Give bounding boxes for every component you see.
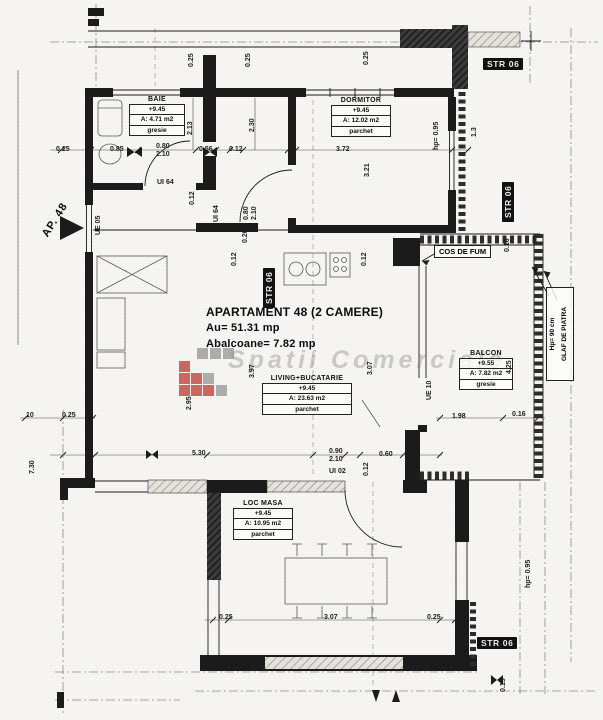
dimension-label: 3.97	[249, 364, 257, 378]
dimension-label: 0.20	[242, 229, 250, 243]
dimension-label: 1.3	[471, 127, 479, 137]
dimension-label: 0.12	[189, 191, 197, 205]
dimension-label: 0.12	[361, 252, 369, 266]
room-label-living: LIVING+BUCATARIE +9.45 A: 23.63 m2 parch…	[262, 375, 352, 415]
dimension-label: 0.25	[62, 412, 76, 420]
annotation-layer: APARTAMENT 48 (2 CAMERE) Au= 51.31 mp Ab…	[0, 0, 603, 720]
dimension-label: 0.15	[500, 678, 508, 692]
door-code-label: UE 10	[426, 381, 434, 400]
dimension-label: 3.21	[364, 163, 372, 177]
street-label: STR 06	[483, 58, 523, 70]
dimension-label: 0.25	[188, 53, 196, 67]
room-label-balcon: BALCON +9.55 A: 7.82 m2 gresie	[459, 350, 513, 390]
door-code-label: UI 64	[213, 205, 221, 222]
dimension-label: 0.25	[427, 614, 441, 622]
door-code-label: UE 05	[95, 216, 103, 235]
dimension-label: 1.98	[452, 413, 466, 421]
dimension-label: 0.80 2.10	[156, 143, 170, 158]
dimension-label: 2.30	[249, 118, 257, 132]
dimension-label: 3.07	[367, 361, 375, 375]
dimension-label: 5.30	[192, 450, 206, 458]
dimension-label: 0.16	[504, 238, 512, 252]
dimension-label: 7.30	[29, 460, 37, 474]
room-label-loc-masa: LOC MASA +9.45 A: 10.95 m2 parchet	[233, 500, 293, 540]
dimension-label: 0.25	[245, 53, 253, 67]
dimension-label: 0.25	[56, 146, 70, 154]
chimney-label: COS DE FUM	[434, 245, 491, 258]
floor-plan-scan: Spatii Comerciale APARTAMENT 48 (2 CAMER…	[0, 0, 603, 720]
dimension-label: 2.13	[187, 121, 195, 135]
door-code-label: UI 02	[329, 468, 346, 476]
dimension-label: 3.72	[336, 146, 350, 154]
dimension-label: 0.80 2.10	[243, 206, 258, 220]
useful-area-text: Au= 51.31 mp	[206, 322, 280, 334]
balcony-area-text: Abalcoane= 7.82 mp	[206, 338, 316, 350]
dimension-label: 0.85	[110, 146, 124, 154]
room-label-baie: BAIE +9.45 A: 4.71 m2 gresie	[129, 96, 185, 136]
dimension-label: 3.07	[324, 614, 338, 622]
apartment-title: APARTAMENT 48 (2 CAMERE)	[206, 305, 383, 319]
dimension-label: 4.25	[506, 360, 514, 374]
street-label: STR 06	[502, 182, 514, 222]
dimension-label: 0.12	[231, 252, 239, 266]
stone-sill-note: Hp= 90 cm GLAF DE PIATRA	[546, 287, 574, 381]
dimension-label: 10	[26, 412, 34, 420]
dimension-label: hp= 0.95	[525, 560, 533, 588]
apartment-number-label: AP. 48	[40, 201, 70, 240]
dimension-label: 0.90 2.10	[329, 448, 343, 463]
room-label-dormitor: DORMITOR +9.45 A: 12.02 m2 parchet	[331, 97, 391, 137]
dimension-label: hp= 0.95	[433, 122, 441, 150]
street-label: STR 06	[263, 268, 275, 308]
dimension-label: 0.12	[229, 146, 243, 154]
dimension-label: 2.95	[186, 396, 194, 410]
door-code-label: UI 64	[157, 179, 174, 187]
dimension-label: 0.16	[512, 411, 526, 419]
dimension-label: 0.12	[363, 462, 371, 476]
dimension-label: 0.56	[199, 146, 213, 154]
dimension-label: 0.25	[363, 51, 371, 65]
dimension-label: 0.60	[379, 451, 393, 459]
street-label: STR 06	[477, 637, 517, 649]
dimension-label: 0.25	[219, 614, 233, 622]
